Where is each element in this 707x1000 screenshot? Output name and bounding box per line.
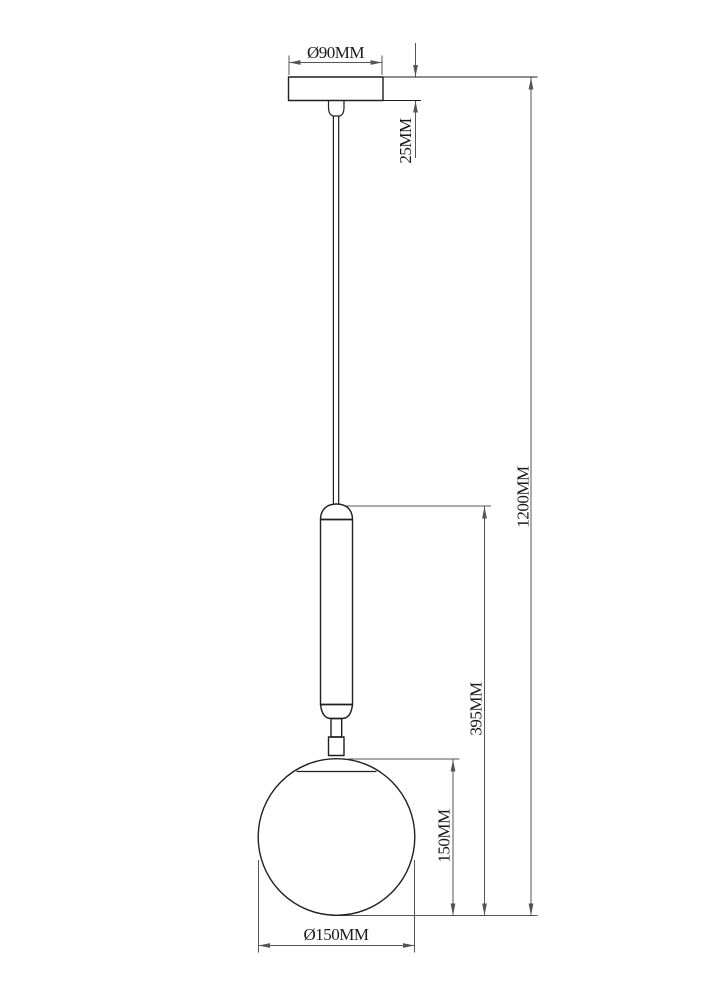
arrowhead-down: [482, 904, 487, 916]
arrowhead-up: [529, 78, 534, 90]
dimension-overall-drop: 1200MM: [514, 78, 534, 916]
dimension-globe-height: 150MM: [348, 759, 460, 916]
dimension-label-canopy-height: 25MM: [396, 118, 415, 164]
dimension-label-globe-height: 150MM: [435, 809, 454, 863]
stem-neck: [331, 719, 342, 738]
stem-bottom-cap: [321, 705, 353, 719]
dimension-canopy-diameter: Ø90MM: [289, 43, 382, 75]
arrowhead-left: [289, 60, 301, 65]
arrowhead-up: [413, 101, 418, 113]
arrowhead-down: [529, 904, 534, 916]
socket-collar: [329, 737, 345, 756]
ceiling-canopy: [289, 77, 384, 101]
arrowhead-right: [403, 943, 415, 948]
dimension-canopy-height: 25MM: [396, 43, 418, 164]
dimension-label-canopy-diameter: Ø90MM: [307, 43, 364, 62]
arrowhead-up: [482, 507, 487, 519]
dimension-label-overall-drop: 1200MM: [514, 466, 533, 528]
dimension-globe-diameter: Ø150MM: [259, 860, 415, 953]
glass-globe: [258, 759, 415, 916]
suspension-cord: [333, 116, 338, 505]
dimension-label-body-height: 395MM: [467, 682, 486, 736]
arrowhead-down: [451, 904, 456, 916]
dimension-label-globe-diameter: Ø150MM: [303, 925, 368, 944]
stem-body: [321, 520, 353, 705]
dimension-body-height: 395MM: [346, 506, 492, 916]
lamp-outline: [258, 77, 415, 915]
arrowhead-right: [371, 60, 383, 65]
technical-drawing-page: Ø90MM 25MM 1200MM 395MM: [0, 0, 707, 1000]
arrowhead-down: [413, 65, 418, 77]
arrowhead-left: [259, 943, 271, 948]
arrowhead-up: [451, 760, 456, 772]
pendant-lamp-drawing: Ø90MM 25MM 1200MM 395MM: [0, 0, 707, 1000]
cord-grip: [329, 101, 345, 117]
